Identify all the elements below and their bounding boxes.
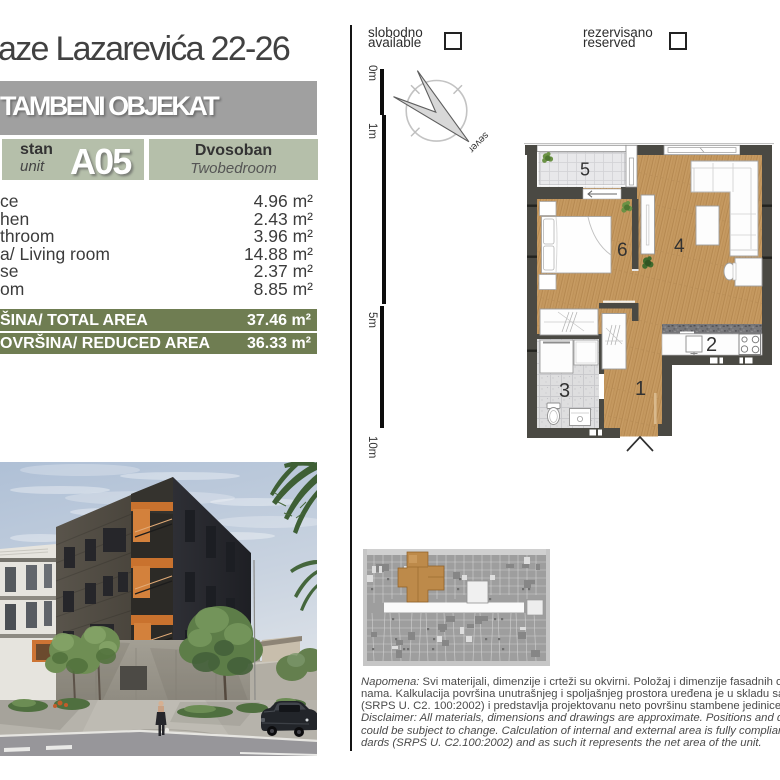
svg-text:3: 3	[559, 380, 570, 402]
svg-text:sever: sever	[465, 130, 491, 156]
svg-text:4: 4	[674, 236, 685, 257]
svg-text:5: 5	[580, 160, 590, 180]
svg-text:2: 2	[706, 334, 717, 356]
svg-text:6: 6	[617, 240, 628, 261]
svg-text:1: 1	[635, 378, 646, 400]
